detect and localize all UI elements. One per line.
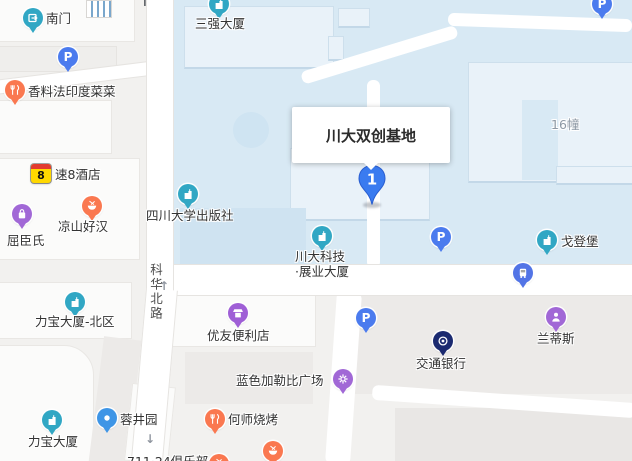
map-building-block <box>0 100 112 154</box>
poi-watsons-label[interactable]: 屈臣氏 <box>7 233 45 248</box>
map-canvas[interactable]: 科华北路 P8PPP 南门三强大厦香料法印度菜菜速8酒店凉山好汉屈臣氏四川大学出… <box>0 0 632 461</box>
poi-landisi-label[interactable]: 兰蒂斯 <box>537 331 575 346</box>
leisure-icon <box>333 369 353 389</box>
poi-sanqiang-tower-label[interactable]: 三强大厦 <box>195 16 245 31</box>
bus-icon <box>513 263 533 283</box>
poi-rongjingyuan-label[interactable]: 蓉井园 <box>120 412 158 427</box>
poi-blue-caribbean-plaza-label[interactable]: 蓝色加勒比广场 <box>236 373 324 388</box>
poi-bank-of-communications-label[interactable]: 交通银行 <box>416 356 466 371</box>
poi-chuanda-tech-tower-label[interactable]: 川大科技 ·展业大厦 <box>295 249 349 279</box>
poi-pointer-tip <box>437 246 445 252</box>
poi-pointer-tip <box>362 327 370 333</box>
shop-icon <box>228 303 248 323</box>
restaurant-icon <box>5 80 25 100</box>
building-icon <box>537 230 557 250</box>
poi-pointer-tip <box>211 428 219 434</box>
parking-icon: P <box>356 308 376 328</box>
poi-libao-tower-north-label[interactable]: 力宝大厦-北区 <box>35 314 115 329</box>
building-icon <box>65 292 85 312</box>
campus-pond <box>233 112 269 148</box>
poi-liangshan-restaurant-label[interactable]: 凉山好汉 <box>58 219 108 234</box>
building-icon <box>42 410 62 430</box>
poi-libao-tower-label[interactable]: 力宝大厦 <box>28 434 78 449</box>
poi-south-gate-label[interactable]: 南门 <box>46 11 71 26</box>
super8-hotel-icon: 8 <box>31 164 51 183</box>
building-icon <box>312 226 332 246</box>
road-arrow-up: ↑ <box>159 280 169 292</box>
poi-indian-restaurant-label[interactable]: 香料法印度菜菜 <box>28 84 116 99</box>
map-building-notch <box>522 100 558 180</box>
building-number-label: 16幢 <box>551 117 579 132</box>
parking-icon: P <box>58 47 78 67</box>
poi-pointer-tip <box>64 66 72 72</box>
ktv-icon <box>546 307 566 327</box>
partial-club-label: 711·24俱乐部 <box>127 454 208 461</box>
poi-pointer-tip <box>18 223 26 229</box>
poi-pointer-tip <box>339 388 347 394</box>
road-kehua-north <box>146 0 174 292</box>
poi-heshi-bbq-label[interactable]: 何师烧烤 <box>228 412 278 427</box>
bag-icon <box>12 204 32 224</box>
poi-scu-press-label[interactable]: 四川大学出版社 <box>146 208 234 223</box>
poi-gedengbao-label[interactable]: 戈登堡 <box>561 234 599 249</box>
location-pin-marker[interactable]: 1 <box>357 164 387 212</box>
poi-pointer-tip <box>519 282 527 288</box>
poi-pointer-tip <box>543 249 551 255</box>
road-arrow-down: ↓ <box>145 433 155 445</box>
parking-icon: P <box>431 227 451 247</box>
road-arrow-up-dark: ↑ <box>139 0 151 9</box>
map-building-block <box>328 36 344 61</box>
bowl-icon <box>82 196 102 216</box>
map-building-block <box>352 296 632 394</box>
place-name: 川大双创基地 <box>326 125 416 146</box>
poi-pointer-tip <box>11 99 19 105</box>
pin-icon: 1 <box>357 164 387 208</box>
scenic-icon <box>97 408 117 428</box>
restaurant-icon <box>205 409 225 429</box>
bowl-icon <box>263 441 283 461</box>
pin-number: 1 <box>367 171 377 189</box>
poi-youyou-store-label[interactable]: 优友便利店 <box>207 328 270 343</box>
map-building-block <box>556 166 632 185</box>
road-east-west <box>146 264 632 296</box>
poi-pointer-tip <box>29 27 37 33</box>
gate-icon <box>23 8 43 28</box>
bank-icon <box>433 331 453 351</box>
infobox-tail <box>363 162 379 170</box>
map-building-block <box>395 408 632 461</box>
place-infobox[interactable]: 川大双创基地 <box>292 107 450 163</box>
striped-building-block <box>86 0 112 18</box>
poi-pointer-tip <box>598 13 606 19</box>
poi-super8-hotel-label[interactable]: 速8酒店 <box>55 167 100 182</box>
bowl-icon <box>209 454 229 461</box>
map-building-block <box>338 8 370 28</box>
map-building-block <box>0 282 132 339</box>
building-icon <box>178 184 198 204</box>
poi-pointer-tip <box>103 427 111 433</box>
